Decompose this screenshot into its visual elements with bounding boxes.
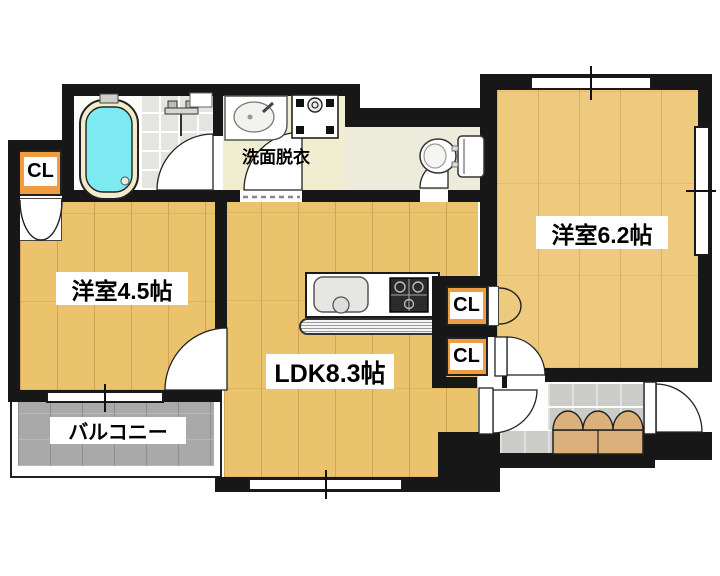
entrance-door-swing: [656, 384, 702, 432]
wall: [62, 84, 345, 96]
west62-room-label-text: 洋室6.2帖: [552, 216, 653, 250]
closet-label-text: CL: [27, 160, 54, 183]
wall: [480, 74, 497, 278]
balcony-label: バルコニー: [50, 417, 186, 444]
wall: [545, 368, 712, 382]
balcony-label-text: バルコニー: [68, 416, 168, 445]
bathroom-tile-floor: [140, 96, 213, 190]
ldk-hall-door-swing: [493, 390, 537, 433]
toilet-corridor-floor: [345, 127, 480, 190]
wall: [213, 96, 223, 136]
wall: [488, 453, 655, 468]
entrance-tile-lower: [500, 430, 643, 455]
window-west62-top: [530, 76, 652, 90]
entrance-door-leaf: [644, 382, 656, 434]
west45-room-label: 洋室4.5帖: [56, 272, 188, 305]
closet-1-bifold-door: [488, 286, 499, 326]
wall: [432, 276, 497, 286]
washroom-label: 洗面脱衣: [233, 144, 319, 167]
wall: [62, 190, 240, 202]
wall: [345, 108, 497, 127]
wall: [432, 377, 477, 388]
wall: [215, 202, 227, 330]
closet-label-west45: CL: [24, 157, 57, 186]
west62-room-label: 洋室6.2帖: [536, 216, 668, 249]
closet-label-text: CL: [453, 294, 480, 317]
window-west45-balcony: [46, 391, 164, 403]
floorplan: 洋室4.5帖 洋室6.2帖 LDK8.3帖 洗面脱衣 バルコニー CL CL C…: [0, 0, 720, 576]
closet-label-text: CL: [453, 345, 480, 368]
washroom-label-text: 洗面脱衣: [242, 143, 310, 168]
ldk-room-label: LDK8.3帖: [266, 354, 394, 389]
closet-label-2-west62: CL: [450, 343, 483, 370]
wall: [432, 326, 497, 337]
wall: [502, 368, 507, 388]
wall: [438, 432, 500, 492]
wall: [8, 140, 20, 392]
kitchen-counter: [305, 272, 440, 318]
entrance-tile-upper: [548, 382, 643, 432]
window-ldk-bottom: [248, 478, 403, 491]
kitchen-counter-front: [299, 318, 441, 335]
closet-label-1-west62: CL: [450, 292, 483, 319]
ldk-hall-door-leaf: [479, 388, 493, 434]
window-west62-right: [694, 126, 710, 256]
wall: [302, 190, 420, 202]
closet-2-door-strip: [488, 337, 495, 376]
closet-west45-bifold-door: [18, 198, 62, 241]
west45-room-label-text: 洋室4.5帖: [72, 272, 173, 306]
ldk-room-label-text: LDK8.3帖: [274, 354, 385, 390]
